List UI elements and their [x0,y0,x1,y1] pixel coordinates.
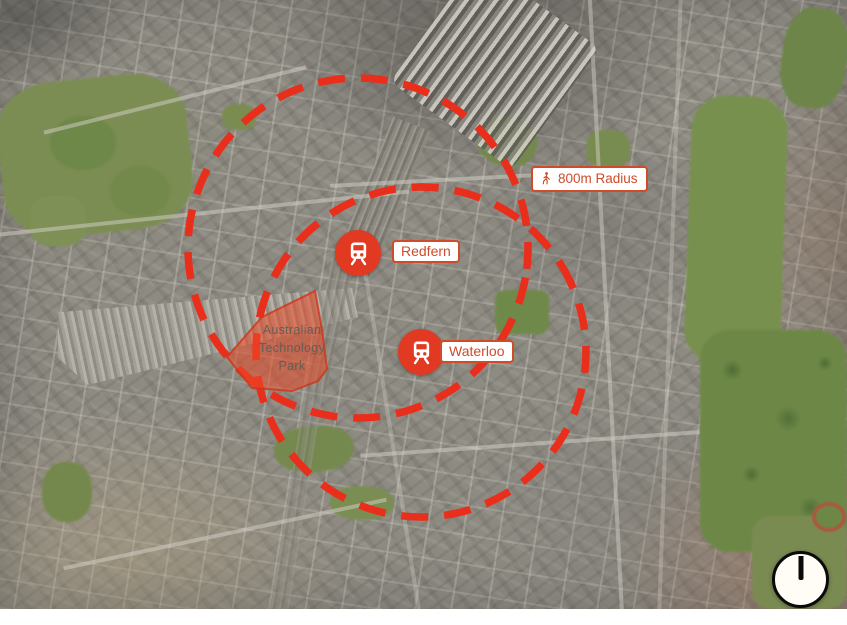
north-needle [798,556,803,580]
area-label-line3: Park [245,357,339,375]
area-label-line1: Australian [245,321,339,339]
area-label-atp: Australian Technology Park [245,321,339,375]
station-marker-waterloo [398,329,444,375]
radius-badge: 800m Radius [531,166,648,192]
north-compass-icon [772,551,829,608]
area-label-line2: Technology [245,339,339,357]
station-label-redfern: Redfern [392,240,460,263]
station-label-waterloo: Waterloo [440,340,514,363]
radius-badge-label: 800m Radius [558,171,638,186]
walking-person-icon [539,170,553,187]
train-icon [345,240,372,267]
annotation-overlay [0,0,847,609]
station-marker-redfern [335,230,381,276]
aerial-map: Australian Technology Park [0,0,847,609]
train-icon [408,339,435,366]
slide-canvas: Australian Technology Park [0,0,847,625]
